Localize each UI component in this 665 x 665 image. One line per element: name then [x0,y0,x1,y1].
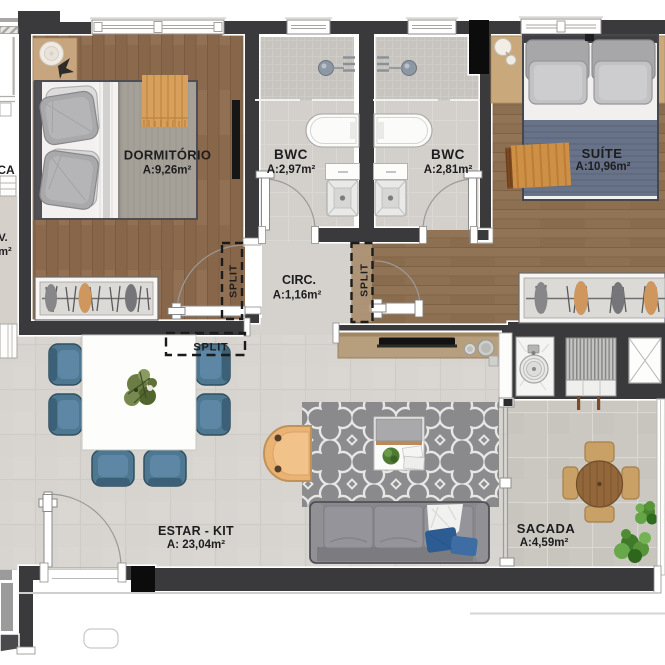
svg-text:A:9,26m²: A:9,26m² [143,165,192,177]
svg-text:CA: CA [0,163,15,177]
svg-text:SUÍTE: SUÍTE [582,146,623,161]
svg-text:CIRC.: CIRC. [282,273,316,287]
svg-text:A:10,96m²: A:10,96m² [576,161,631,173]
svg-text:A:4,59m²: A:4,59m² [520,537,569,549]
svg-text:BWC: BWC [431,147,465,162]
svg-text:A:1,16m²: A:1,16m² [273,290,322,302]
svg-text:SPLIT: SPLIT [359,263,371,297]
svg-text:BWC: BWC [274,147,308,162]
svg-text:ESTAR - KIT: ESTAR - KIT [158,524,234,538]
svg-text:SACADA: SACADA [517,521,576,536]
svg-text:V.: V. [0,232,8,244]
svg-text:A:2,81m²: A:2,81m² [424,164,473,176]
svg-text:DORMITÓRIO: DORMITÓRIO [124,148,212,163]
svg-text:A: 23,04m²: A: 23,04m² [167,539,225,551]
svg-text:SPLIT: SPLIT [228,264,240,298]
svg-text:A:2,97m²: A:2,97m² [267,164,316,176]
svg-text:SPLIT: SPLIT [193,342,228,354]
svg-text:m²: m² [0,246,12,258]
